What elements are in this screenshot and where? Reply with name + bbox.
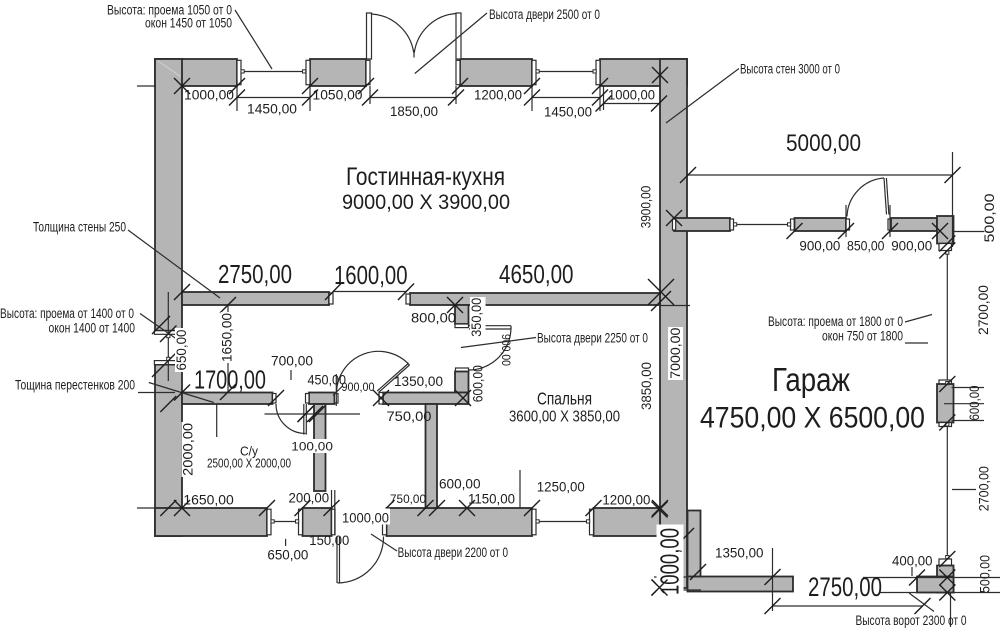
svg-text:3600,00 X 3850,00: 3600,00 X 3850,00 (509, 409, 620, 426)
svg-text:2500,00 X 2000,00: 2500,00 X 2000,00 (207, 457, 291, 471)
svg-text:2700,00: 2700,00 (976, 285, 991, 335)
svg-text:1350,00: 1350,00 (715, 546, 764, 561)
svg-text:100,00: 100,00 (291, 440, 333, 454)
svg-text:600,00: 600,00 (471, 365, 486, 402)
svg-text:1150,00: 1150,00 (468, 492, 515, 507)
svg-text:Высота двери 2250 от 0: Высота двери 2250 от 0 (537, 331, 648, 346)
svg-text:2750,00: 2750,00 (808, 572, 882, 602)
svg-text:2750,00: 2750,00 (218, 259, 292, 289)
svg-text:4650,00: 4650,00 (499, 259, 574, 289)
svg-text:1250,00: 1250,00 (537, 480, 585, 495)
svg-text:Высота: проема от 1400 от 0: Высота: проема от 1400 от 0 (0, 306, 134, 321)
svg-text:1350,00: 1350,00 (394, 374, 443, 389)
svg-text:1700,00: 1700,00 (194, 365, 266, 395)
svg-text:9000,00 X 3900,00: 9000,00 X 3900,00 (342, 191, 510, 214)
svg-text:Высота двери 2200 от 0: Высота двери 2200 от 0 (398, 545, 508, 560)
svg-text:1000,00: 1000,00 (342, 511, 389, 526)
svg-text:800,00: 800,00 (411, 311, 456, 326)
svg-text:1600,00: 1600,00 (334, 260, 408, 290)
svg-text:Гараж: Гараж (772, 361, 850, 398)
svg-text:450,00: 450,00 (308, 373, 347, 388)
svg-text:окон 1450 от 1050: окон 1450 от 1050 (145, 16, 232, 31)
svg-text:600,00: 600,00 (439, 477, 481, 492)
svg-text:3900,00: 3900,00 (638, 186, 653, 229)
svg-text:1000,00: 1000,00 (608, 88, 655, 103)
svg-text:4750,00 X 6500,00: 4750,00 X 6500,00 (700, 402, 925, 435)
svg-text:Высота двери 2500 от 0: Высота двери 2500 от 0 (489, 7, 600, 22)
svg-text:400,00: 400,00 (892, 554, 933, 569)
svg-text:окон 1400 от 1400: окон 1400 от 1400 (49, 321, 136, 336)
svg-text:1200,00: 1200,00 (474, 88, 522, 103)
svg-text:650,00: 650,00 (267, 548, 308, 563)
svg-text:Высота: проема от 1800 от 0: Высота: проема от 1800 от 0 (768, 314, 903, 329)
svg-text:2700,00: 2700,00 (976, 466, 991, 511)
svg-text:Высота ворот 2300 от 0: Высота ворот 2300 от 0 (856, 613, 967, 628)
svg-text:1650,00: 1650,00 (183, 493, 233, 508)
svg-text:600,00: 600,00 (967, 386, 982, 421)
svg-text:Толщина стены 250: Толщина стены 250 (33, 220, 126, 235)
svg-text:Гостинная-кухня: Гостинная-кухня (346, 163, 505, 191)
svg-text:500,00: 500,00 (977, 555, 992, 593)
svg-text:1200,00: 1200,00 (602, 493, 650, 508)
svg-text:1450,00: 1450,00 (247, 102, 297, 117)
svg-text:500,00: 500,00 (982, 194, 997, 243)
svg-text:900,00: 900,00 (799, 239, 840, 254)
svg-text:650,00: 650,00 (174, 330, 189, 371)
svg-text:1450,00: 1450,00 (544, 105, 592, 120)
svg-text:1050,00: 1050,00 (313, 88, 363, 103)
svg-text:700,00: 700,00 (271, 354, 313, 369)
svg-text:1850,00: 1850,00 (390, 104, 438, 119)
svg-text:150,00: 150,00 (309, 533, 349, 548)
svg-text:2000,00: 2000,00 (180, 423, 195, 476)
svg-text:900,00: 900,00 (342, 380, 375, 394)
svg-text:900,00: 900,00 (891, 239, 932, 254)
svg-text:200,00: 200,00 (289, 491, 330, 506)
svg-text:350,00: 350,00 (469, 298, 484, 337)
svg-text:1650,00: 1650,00 (219, 313, 234, 362)
svg-text:1000,00: 1000,00 (655, 528, 685, 595)
svg-text:3850,00: 3850,00 (639, 362, 654, 410)
svg-text:5000,00: 5000,00 (786, 130, 861, 157)
svg-text:7000,00: 7000,00 (668, 328, 683, 379)
svg-text:1000,00: 1000,00 (184, 88, 234, 103)
svg-text:Высота стен 3000 от 0: Высота стен 3000 от 0 (740, 62, 840, 77)
svg-text:900,00: 900,00 (499, 334, 513, 366)
svg-text:750,00: 750,00 (390, 492, 426, 506)
svg-text:Тощина перестенков 200: Тощина перестенков 200 (15, 378, 135, 393)
svg-text:850,00: 850,00 (847, 239, 885, 254)
svg-text:Спальня: Спальня (537, 389, 592, 409)
svg-text:750,00: 750,00 (387, 409, 432, 424)
svg-text:окон 750 от 1800: окон 750 от 1800 (822, 329, 903, 344)
